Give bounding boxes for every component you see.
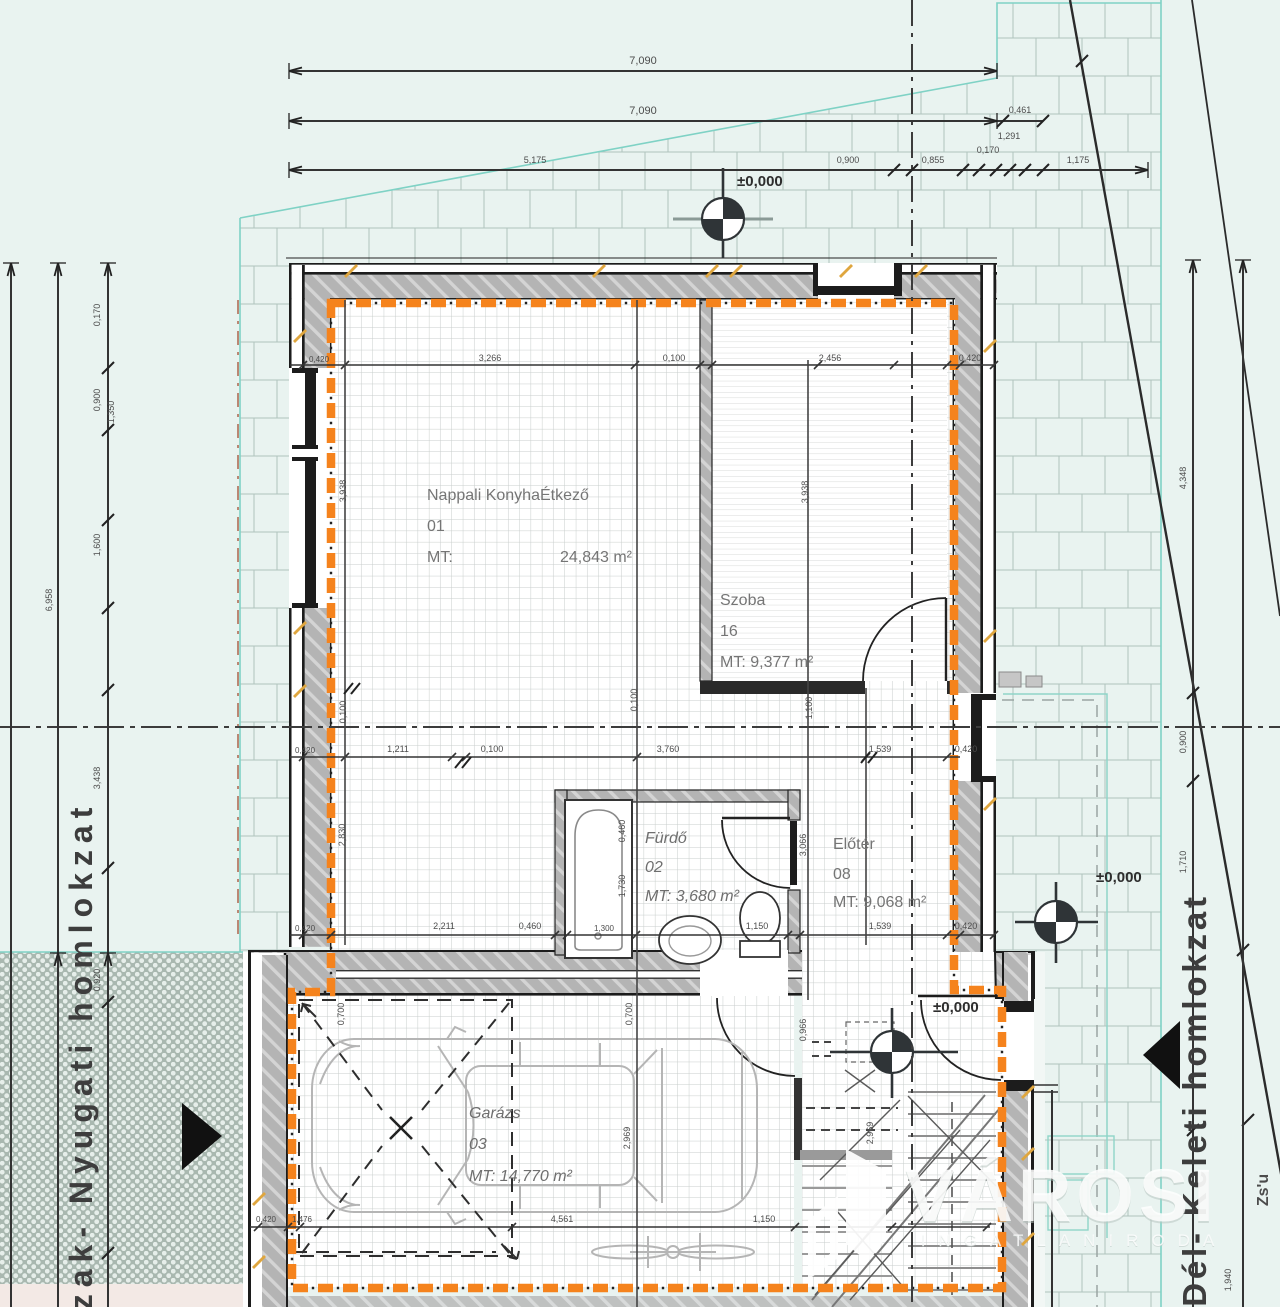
svg-text:1,940: 1,940 (1223, 1269, 1233, 1292)
svg-text:Előtér: Előtér (833, 836, 875, 853)
svg-text:4,348: 4,348 (1178, 467, 1188, 490)
svg-text:0,100: 0,100 (663, 353, 686, 363)
svg-text:0,700: 0,700 (336, 1003, 346, 1026)
svg-text:24,843 m²: 24,843 m² (560, 549, 633, 566)
svg-text:0,900: 0,900 (92, 389, 102, 412)
svg-text:7,090: 7,090 (629, 105, 657, 117)
svg-text:0,420: 0,420 (955, 921, 978, 931)
svg-text:6,958: 6,958 (44, 589, 54, 612)
svg-text:±0,000: ±0,000 (1096, 869, 1142, 886)
svg-text:0,420: 0,420 (295, 746, 316, 755)
svg-text:03: 03 (469, 1136, 487, 1153)
svg-text:INGATLANIRODA: INGATLANIRODA (921, 1231, 1228, 1250)
svg-text:1,211: 1,211 (387, 744, 409, 754)
svg-text:1,600: 1,600 (92, 534, 102, 557)
svg-text:0,420: 0,420 (959, 353, 982, 363)
svg-text:0,461: 0,461 (1009, 105, 1032, 115)
svg-text:5,175: 5,175 (524, 155, 547, 165)
svg-text:3,266: 3,266 (479, 353, 502, 363)
svg-text:02: 02 (645, 859, 663, 876)
svg-text:3,938: 3,938 (338, 480, 348, 503)
svg-text:±0,000: ±0,000 (933, 999, 979, 1016)
svg-text:Garázs: Garázs (469, 1105, 521, 1122)
svg-text:1,476: 1,476 (292, 1215, 313, 1224)
svg-text:0,420: 0,420 (295, 924, 316, 933)
svg-text:VÁROSI: VÁROSI (905, 1154, 1219, 1237)
svg-text:MT: 9,377 m²: MT: 9,377 m² (720, 654, 814, 671)
svg-text:MT: 9,068 m²: MT: 9,068 m² (833, 894, 927, 911)
svg-text:2,969: 2,969 (865, 1122, 875, 1145)
svg-text:0,900: 0,900 (837, 155, 860, 165)
svg-text:1,300: 1,300 (594, 924, 615, 933)
svg-text:3,438: 3,438 (92, 767, 102, 790)
svg-text:4,561: 4,561 (551, 1214, 574, 1224)
svg-text:1,291: 1,291 (998, 131, 1021, 141)
svg-text:1,539: 1,539 (869, 921, 892, 931)
svg-text:1,730: 1,730 (617, 875, 627, 898)
svg-text:08: 08 (833, 866, 851, 883)
svg-text:3,938: 3,938 (800, 481, 810, 504)
svg-text:1,710: 1,710 (1178, 851, 1188, 874)
svg-text:1,100: 1,100 (804, 697, 814, 720)
svg-text:7,090: 7,090 (629, 55, 657, 67)
svg-text:0,100: 0,100 (338, 701, 348, 724)
svg-text:0,966: 0,966 (798, 1019, 808, 1042)
svg-text:3,760: 3,760 (657, 744, 680, 754)
svg-text:0,420: 0,420 (256, 1215, 277, 1224)
svg-text:Zs'u: Zs'u (1255, 1174, 1272, 1206)
svg-text:1,350: 1,350 (106, 401, 116, 424)
svg-text:Nappali KonyhaÉtkező: Nappali KonyhaÉtkező (427, 485, 589, 504)
svg-text:0,170: 0,170 (92, 304, 102, 327)
svg-text:0,170: 0,170 (977, 145, 1000, 155)
svg-text:Észak- Nyugati homlokzat: Észak- Nyugati homlokzat (63, 801, 99, 1307)
svg-text:0,100: 0,100 (481, 744, 504, 754)
svg-text:0,460: 0,460 (519, 921, 542, 931)
svg-text:2,211: 2,211 (433, 921, 455, 931)
svg-text:±0,000: ±0,000 (737, 173, 783, 190)
svg-text:2,830: 2,830 (337, 824, 347, 847)
svg-text:1,150: 1,150 (753, 1214, 776, 1224)
svg-text:0,420: 0,420 (309, 355, 330, 364)
svg-text:3,066: 3,066 (798, 834, 808, 857)
svg-text:01: 01 (427, 518, 445, 535)
svg-text:1,175: 1,175 (1067, 155, 1090, 165)
svg-text:0,100: 0,100 (629, 689, 639, 712)
svg-text:0,420: 0,420 (955, 744, 978, 754)
svg-text:Fürdő: Fürdő (645, 830, 688, 847)
svg-text:1,539: 1,539 (869, 744, 892, 754)
svg-text:0,700: 0,700 (624, 1003, 634, 1026)
svg-text:MT: 14,770 m²: MT: 14,770 m² (469, 1168, 573, 1185)
svg-text:1,150: 1,150 (746, 921, 769, 931)
svg-text:2,456: 2,456 (819, 353, 842, 363)
svg-text:MT:: MT: (427, 549, 453, 566)
svg-text:MT: 3,680 m²: MT: 3,680 m² (645, 888, 740, 905)
svg-text:0,460: 0,460 (617, 820, 627, 843)
svg-text:Szoba: Szoba (720, 592, 765, 609)
svg-text:0,900: 0,900 (1178, 731, 1188, 754)
svg-text:2,969: 2,969 (622, 1127, 632, 1150)
svg-text:16: 16 (720, 623, 738, 640)
svg-text:0,855: 0,855 (922, 155, 945, 165)
